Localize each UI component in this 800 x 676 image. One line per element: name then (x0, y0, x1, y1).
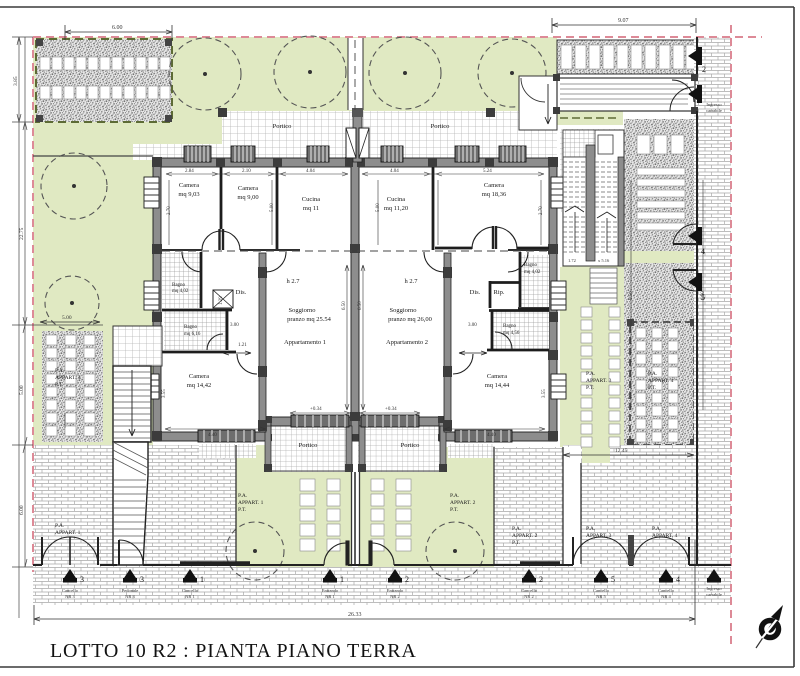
svg-text:Rip.: Rip. (493, 289, 504, 296)
svg-text:mq 6,16: mq 6,16 (184, 332, 201, 337)
svg-text:NR 1: NR 1 (185, 594, 195, 599)
svg-text:Appartamento 1: Appartamento 1 (284, 339, 326, 346)
svg-text:APPART. 1: APPART. 1 (238, 500, 264, 506)
svg-text:NR 2: NR 2 (524, 594, 534, 599)
svg-text:Ingresso: Ingresso (706, 586, 722, 591)
svg-text:mq 9,03: mq 9,03 (178, 191, 199, 198)
svg-text:Cancello: Cancello (658, 588, 675, 593)
svg-text:3.85: 3.85 (13, 76, 19, 86)
svg-text:P.A.: P.A. (652, 526, 662, 532)
svg-text:Ingresso: Ingresso (706, 102, 722, 107)
svg-text:APPART. 2: APPART. 2 (512, 533, 538, 539)
svg-text:Dis.: Dis. (236, 289, 247, 296)
svg-text:1: 1 (200, 575, 204, 584)
svg-text:h 2.7: h 2.7 (405, 278, 419, 285)
svg-text:mq 9,00: mq 9,00 (237, 194, 258, 201)
svg-text:P.A.: P.A. (586, 371, 596, 377)
svg-text:6.00: 6.00 (112, 25, 123, 31)
svg-text:APPART. 2: APPART. 2 (450, 500, 476, 506)
svg-text:APPART. 4: APPART. 4 (652, 533, 678, 539)
svg-text:P.A.: P.A. (586, 526, 596, 532)
svg-text:mq 11,20: mq 11,20 (384, 205, 408, 212)
svg-text:Camera: Camera (484, 182, 504, 189)
svg-text:5: 5 (611, 575, 615, 584)
svg-text:P.T.: P.T. (450, 507, 459, 513)
svg-text:Bagno: Bagno (184, 325, 198, 330)
svg-text:Cancello: Cancello (182, 588, 199, 593)
svg-text:Camera: Camera (487, 373, 507, 380)
svg-text:5.00: 5.00 (270, 203, 275, 212)
svg-text:Camera: Camera (189, 373, 209, 380)
svg-text:Portico: Portico (431, 123, 450, 130)
svg-text:4.04: 4.04 (390, 169, 399, 174)
svg-text:NR 2: NR 2 (390, 594, 400, 599)
svg-text:Portico: Portico (273, 123, 292, 130)
svg-text:Cancello: Cancello (521, 588, 538, 593)
svg-text:3: 3 (80, 575, 84, 584)
svg-text:LOTTO 10 R2 : PIANTA PIANO T: LOTTO 10 R2 : PIANTA PIANO TERRA (50, 640, 417, 662)
svg-text:1: 1 (340, 575, 344, 584)
svg-text:Cucina: Cucina (387, 196, 406, 203)
svg-text:Cucina: Cucina (302, 196, 321, 203)
svg-text:3.55: 3.55 (542, 389, 547, 398)
svg-text:Cancello: Cancello (593, 588, 610, 593)
svg-text:Dis.: Dis. (470, 289, 481, 296)
svg-text:Camera: Camera (179, 182, 199, 189)
svg-text:5.24: 5.24 (483, 169, 492, 174)
svg-text:5.00: 5.00 (19, 385, 25, 395)
svg-text:22.75: 22.75 (19, 227, 25, 240)
svg-text:3: 3 (140, 575, 144, 584)
svg-text:mq 4,02: mq 4,02 (524, 270, 541, 275)
svg-text:6.50: 6.50 (629, 291, 634, 300)
svg-text:NR 1: NR 1 (325, 594, 335, 599)
svg-text:mq 14,44: mq 14,44 (485, 382, 510, 389)
svg-text:+0.34: +0.34 (310, 407, 322, 412)
svg-text:P.A.: P.A. (648, 371, 658, 377)
svg-text:2.10: 2.10 (242, 169, 251, 174)
svg-text:APPART. 3: APPART. 3 (586, 378, 612, 384)
svg-text:APPART. 4: APPART. 4 (648, 378, 674, 384)
svg-text:APPART. 3: APPART. 3 (55, 375, 81, 381)
svg-text:mq 18,36: mq 18,36 (482, 191, 507, 198)
svg-text:NR 5: NR 5 (596, 594, 606, 599)
svg-text:P.T.: P.T. (586, 385, 595, 391)
svg-text:5.00: 5.00 (62, 315, 72, 321)
svg-text:Appartamento 2: Appartamento 2 (386, 339, 428, 346)
svg-text:2: 2 (405, 575, 409, 584)
svg-text:6.50: 6.50 (358, 301, 363, 310)
svg-text:Pedonale: Pedonale (122, 588, 139, 593)
svg-text:P.A.: P.A. (55, 368, 65, 374)
svg-text:4: 4 (676, 575, 680, 584)
svg-text:3.55: 3.55 (162, 389, 167, 398)
svg-text:P.T.: P.T. (648, 385, 657, 391)
svg-text:9.07: 9.07 (618, 18, 629, 24)
svg-text:4.04: 4.04 (306, 169, 315, 174)
svg-text:Portico: Portico (401, 442, 420, 449)
svg-text:Bagno: Bagno (503, 324, 517, 329)
svg-text:1.21: 1.21 (238, 343, 247, 348)
svg-text:1.72: 1.72 (568, 258, 576, 263)
svg-text:4.40: 4.40 (208, 433, 217, 438)
svg-text:P.A.: P.A. (512, 526, 522, 532)
svg-text:APPART. 3: APPART. 3 (586, 533, 612, 539)
svg-text:2: 2 (539, 575, 543, 584)
svg-text:Portico: Portico (299, 442, 318, 449)
svg-text:3.00: 3.00 (468, 323, 477, 328)
svg-text:pranzo mq 26,00: pranzo mq 26,00 (388, 316, 432, 323)
svg-text:APPART. 1: APPART. 1 (55, 530, 81, 536)
svg-text:mq 4,02: mq 4,02 (172, 289, 189, 294)
svg-text:Camera: Camera (238, 185, 258, 192)
svg-text:mq 11: mq 11 (303, 205, 319, 212)
svg-text:Entrando: Entrando (322, 588, 339, 593)
svg-text:NR 3: NR 3 (125, 594, 135, 599)
svg-text:NR 4: NR 4 (661, 594, 671, 599)
svg-text:1.29: 1.29 (219, 296, 224, 305)
svg-text:carrabile: carrabile (706, 108, 722, 113)
svg-text:mq 4,56: mq 4,56 (503, 331, 520, 336)
svg-text:2.84: 2.84 (185, 169, 194, 174)
svg-text:h 2.7: h 2.7 (287, 278, 301, 285)
svg-text:26.33: 26.33 (348, 612, 362, 618)
svg-text:Entrando: Entrando (387, 588, 404, 593)
svg-text:4.40: 4.40 (487, 433, 496, 438)
svg-text:2: 2 (702, 65, 706, 74)
svg-text:5.00: 5.00 (376, 203, 381, 212)
svg-text:x 5.16: x 5.16 (598, 258, 610, 263)
svg-text:6.00: 6.00 (19, 505, 25, 515)
svg-text:P.T.: P.T. (512, 540, 521, 546)
svg-text:6.50: 6.50 (342, 301, 347, 310)
svg-text:2.70: 2.70 (167, 206, 172, 215)
svg-text:12.45: 12.45 (615, 448, 628, 454)
svg-text:P.A.: P.A. (55, 523, 65, 529)
svg-text:NR 3: NR 3 (65, 594, 75, 599)
svg-text:P.T.: P.T. (55, 382, 64, 388)
svg-text:mq 14,42: mq 14,42 (187, 382, 212, 389)
svg-text:Bagno: Bagno (524, 263, 538, 268)
svg-text:carrabile: carrabile (706, 592, 722, 597)
svg-text:P.A.: P.A. (450, 493, 460, 499)
svg-text:2.70: 2.70 (539, 206, 544, 215)
svg-text:Cancello: Cancello (62, 588, 79, 593)
svg-text:6.50: 6.50 (701, 291, 706, 300)
svg-text:+0.34: +0.34 (385, 407, 397, 412)
svg-text:3.00: 3.00 (230, 323, 239, 328)
svg-text:P.A.: P.A. (238, 493, 248, 499)
svg-text:pranzo mq 25.54: pranzo mq 25.54 (287, 316, 332, 323)
svg-text:Soggiorno: Soggiorno (389, 307, 416, 314)
svg-text:Soggiorno: Soggiorno (288, 307, 315, 314)
svg-text:Bagno: Bagno (172, 283, 186, 288)
svg-text:P.T.: P.T. (238, 507, 247, 513)
